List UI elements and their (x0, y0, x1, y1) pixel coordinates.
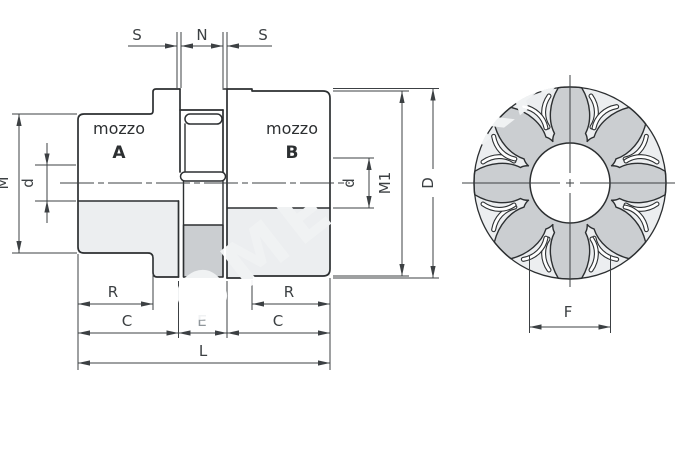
dim-label-d-right: d (340, 178, 358, 188)
dim-label-c-left: C (122, 312, 132, 330)
dim-label-m1: M1 (376, 172, 394, 195)
hub-b-letter: B (286, 143, 299, 163)
dim-label-c-right: C (273, 312, 283, 330)
dim-label-n: N (196, 26, 207, 44)
dimension-d-right: d (333, 158, 374, 208)
dim-label-d-left: d (19, 178, 37, 188)
spider-slot-upper (185, 114, 222, 124)
drawing-canvas: mozzo A mozzo B S N S M d (0, 0, 675, 450)
dim-label-s-left: S (132, 26, 142, 44)
dim-label-r-left: R (108, 283, 118, 301)
dim-label-l: L (199, 342, 208, 360)
dim-label-outer-d: D (419, 177, 437, 189)
dim-label-s-right: S (258, 26, 268, 44)
hub-a-section-fill (78, 201, 179, 277)
dim-label-r-right: R (284, 283, 294, 301)
dim-label-m: M (0, 177, 12, 190)
hub-a-label: mozzo (93, 119, 145, 138)
dim-label-f: F (564, 303, 573, 321)
hub-b-label: mozzo (266, 119, 318, 138)
dimension-s-n-s: S N S (128, 26, 272, 88)
spider-slot-center (181, 172, 226, 181)
coupling-technical-drawing: mozzo A mozzo B S N S M d (0, 0, 675, 450)
hub-a-letter: A (112, 143, 126, 163)
